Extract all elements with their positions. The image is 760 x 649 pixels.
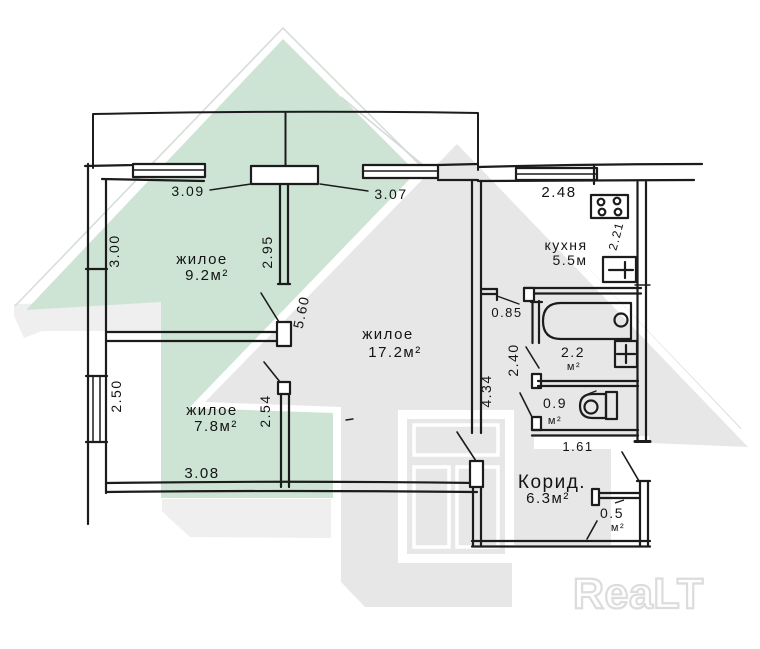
svg-text:17.2м²: 17.2м² [368,344,422,361]
svg-text:м²: м² [611,522,625,534]
svg-text:2.21: 2.21 [606,220,627,252]
svg-text:0.5: 0.5 [600,505,624,521]
svg-text:жилое: жилое [186,402,238,419]
svg-text:0.9: 0.9 [543,395,567,411]
svg-text:кухня: кухня [544,237,587,253]
svg-text:1.61: 1.61 [562,439,593,454]
svg-text:3.00: 3.00 [106,234,122,267]
svg-text:2.54: 2.54 [257,394,273,427]
svg-text:3.08: 3.08 [184,465,219,482]
svg-text:3.09: 3.09 [171,183,204,199]
svg-text:жилое: жилое [176,251,228,268]
svg-text:6.3м²: 6.3м² [526,490,570,507]
svg-text:4.34: 4.34 [478,374,494,407]
svg-text:3.07: 3.07 [374,186,407,202]
svg-text:2.50: 2.50 [108,379,124,412]
svg-text:7.8м²: 7.8м² [194,418,238,435]
svg-text:м²: м² [548,415,562,427]
svg-text:жилое: жилое [362,326,414,343]
svg-text:9.2м²: 9.2м² [185,267,229,284]
svg-text:5.5м: 5.5м [552,252,587,268]
svg-text:2.2: 2.2 [561,344,585,360]
svg-text:2.40: 2.40 [505,343,521,376]
svg-text:2.48: 2.48 [541,184,576,201]
svg-text:0.85: 0.85 [491,305,522,320]
svg-text:ReaLT: ReaLT [573,570,704,618]
svg-text:м²: м² [567,361,581,373]
svg-text:2.95: 2.95 [259,235,275,268]
